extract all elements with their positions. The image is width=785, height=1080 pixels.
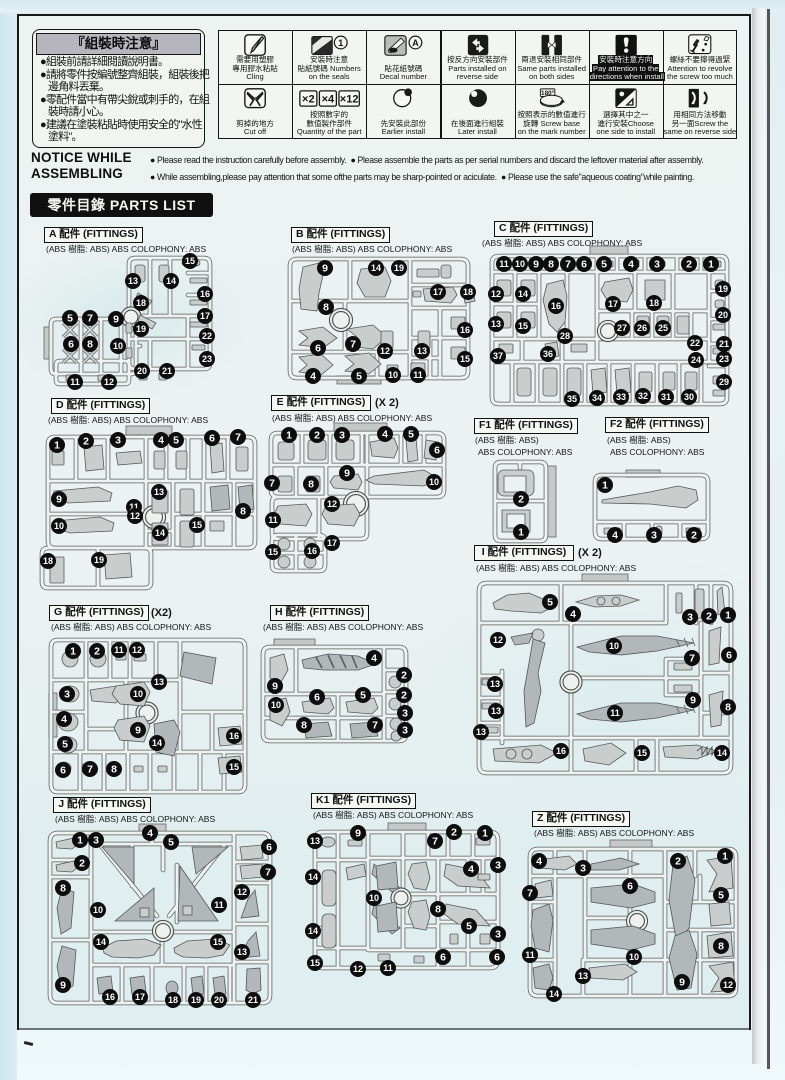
- svg-text:8: 8: [548, 258, 554, 270]
- svg-text:20: 20: [214, 995, 224, 1005]
- svg-text:3: 3: [64, 688, 70, 700]
- svg-text:12: 12: [353, 964, 363, 974]
- svg-text:3: 3: [402, 724, 408, 736]
- svg-text:3: 3: [495, 928, 501, 940]
- svg-text:10: 10: [609, 641, 619, 651]
- svg-text:15: 15: [192, 520, 202, 530]
- svg-text:8: 8: [725, 701, 731, 713]
- svg-text:15: 15: [213, 937, 223, 947]
- svg-text:10: 10: [93, 905, 103, 915]
- svg-text:13: 13: [310, 836, 320, 846]
- svg-text:×4: ×4: [321, 93, 334, 105]
- svg-text:12: 12: [380, 346, 390, 356]
- svg-text:13: 13: [154, 677, 164, 687]
- svg-text:17: 17: [327, 538, 337, 548]
- svg-text:5: 5: [67, 312, 73, 324]
- svg-text:17: 17: [433, 287, 443, 297]
- svg-text:33: 33: [616, 392, 626, 402]
- svg-text:16: 16: [105, 992, 115, 1002]
- svg-text:4: 4: [536, 855, 542, 867]
- svg-text:11: 11: [499, 259, 509, 269]
- svg-text:1: 1: [602, 479, 608, 491]
- svg-text:11: 11: [70, 377, 80, 387]
- svg-text:13: 13: [491, 706, 501, 716]
- svg-text:6: 6: [726, 649, 732, 661]
- svg-text:2: 2: [401, 689, 407, 701]
- svg-text:1: 1: [708, 258, 714, 270]
- svg-text:9: 9: [690, 694, 696, 706]
- svg-text:19: 19: [191, 995, 201, 1005]
- svg-text:2: 2: [675, 855, 681, 867]
- svg-text:5: 5: [718, 889, 724, 901]
- svg-text:16: 16: [229, 731, 239, 741]
- svg-text:22: 22: [690, 338, 700, 348]
- svg-text:9: 9: [355, 827, 361, 839]
- svg-text:5: 5: [547, 596, 553, 608]
- svg-text:15: 15: [518, 321, 528, 331]
- svg-text:7: 7: [265, 866, 271, 878]
- svg-text:21: 21: [719, 339, 729, 349]
- svg-text:3: 3: [495, 859, 501, 871]
- svg-text:13: 13: [128, 276, 138, 286]
- svg-text:10: 10: [429, 477, 439, 487]
- svg-text:3: 3: [654, 258, 660, 270]
- svg-text:26: 26: [637, 323, 647, 333]
- svg-text:36: 36: [543, 349, 553, 359]
- svg-text:6: 6: [315, 342, 321, 354]
- svg-text:2: 2: [79, 857, 85, 869]
- svg-text:×12: ×12: [339, 93, 358, 105]
- svg-text:7: 7: [350, 338, 356, 350]
- svg-text:1: 1: [54, 439, 60, 451]
- svg-text:25: 25: [658, 323, 668, 333]
- svg-text:1: 1: [77, 834, 83, 846]
- svg-text:4: 4: [468, 863, 474, 875]
- svg-text:4: 4: [628, 258, 634, 270]
- svg-text:9: 9: [533, 258, 539, 270]
- svg-text:37: 37: [493, 351, 503, 361]
- svg-text:14: 14: [518, 289, 528, 299]
- svg-text:12: 12: [491, 289, 501, 299]
- svg-text:1: 1: [286, 429, 292, 441]
- svg-text:13: 13: [490, 679, 500, 689]
- svg-text:6: 6: [314, 691, 320, 703]
- svg-text:3: 3: [115, 434, 121, 446]
- svg-text:4: 4: [382, 428, 388, 440]
- svg-text:3: 3: [687, 611, 693, 623]
- svg-text:12: 12: [130, 511, 140, 521]
- svg-text:4: 4: [147, 827, 153, 839]
- svg-text:17: 17: [200, 311, 210, 321]
- svg-text:2: 2: [94, 645, 100, 657]
- svg-text:13: 13: [417, 346, 427, 356]
- svg-text:1: 1: [482, 827, 488, 839]
- svg-text:19: 19: [94, 555, 104, 565]
- svg-text:7: 7: [527, 887, 533, 899]
- svg-text:20: 20: [137, 366, 147, 376]
- svg-text:6: 6: [434, 444, 440, 456]
- svg-text:9: 9: [56, 493, 62, 505]
- svg-text:30: 30: [684, 392, 694, 402]
- svg-text:6: 6: [68, 338, 74, 350]
- svg-text:2: 2: [706, 610, 712, 622]
- svg-text:5: 5: [173, 434, 179, 446]
- svg-text:12: 12: [327, 499, 337, 509]
- svg-text:6: 6: [494, 951, 500, 963]
- svg-text:8: 8: [111, 763, 117, 775]
- svg-text:5: 5: [356, 370, 362, 382]
- svg-text:11: 11: [610, 708, 620, 718]
- svg-text:31: 31: [661, 392, 671, 402]
- svg-text:1: 1: [722, 850, 728, 862]
- svg-text:12: 12: [723, 980, 733, 990]
- svg-text:14: 14: [717, 748, 727, 758]
- svg-text:4: 4: [612, 529, 618, 541]
- svg-text:13: 13: [578, 971, 588, 981]
- svg-text:11: 11: [525, 950, 535, 960]
- svg-text:8: 8: [87, 338, 93, 350]
- svg-text:15: 15: [185, 256, 195, 266]
- svg-text:7: 7: [689, 652, 695, 664]
- svg-text:21: 21: [248, 995, 258, 1005]
- svg-text:11: 11: [268, 515, 278, 525]
- svg-text:4: 4: [310, 370, 316, 382]
- svg-text:6: 6: [266, 841, 272, 853]
- svg-text:12: 12: [493, 635, 503, 645]
- svg-text:8: 8: [60, 882, 66, 894]
- svg-text:10: 10: [133, 689, 143, 699]
- svg-text:13: 13: [154, 487, 164, 497]
- svg-text:21: 21: [162, 366, 172, 376]
- svg-text:28: 28: [560, 331, 570, 341]
- svg-text:14: 14: [166, 276, 176, 286]
- svg-text:3: 3: [402, 707, 408, 719]
- svg-text:5: 5: [168, 836, 174, 848]
- svg-text:2: 2: [691, 529, 697, 541]
- svg-text:4: 4: [61, 713, 67, 725]
- svg-text:19: 19: [718, 284, 728, 294]
- svg-text:18: 18: [463, 287, 473, 297]
- svg-text:7: 7: [372, 719, 378, 731]
- svg-text:19: 19: [136, 324, 146, 334]
- svg-text:9: 9: [113, 313, 119, 325]
- svg-text:4: 4: [371, 652, 377, 664]
- svg-text:×2: ×2: [302, 93, 315, 105]
- svg-text:14: 14: [549, 989, 559, 999]
- svg-text:6: 6: [440, 951, 446, 963]
- svg-text:4: 4: [158, 434, 164, 446]
- svg-text:6: 6: [60, 764, 66, 776]
- svg-text:13: 13: [237, 947, 247, 957]
- svg-text:16: 16: [551, 301, 561, 311]
- svg-text:10: 10: [388, 370, 398, 380]
- svg-text:8: 8: [323, 301, 329, 313]
- svg-text:12: 12: [132, 645, 142, 655]
- svg-text:11: 11: [383, 963, 393, 973]
- svg-text:29: 29: [719, 377, 729, 387]
- svg-text:20: 20: [718, 310, 728, 320]
- svg-text:15: 15: [637, 748, 647, 758]
- svg-text:10: 10: [629, 952, 639, 962]
- svg-text:11: 11: [413, 370, 423, 380]
- svg-text:18: 18: [43, 556, 53, 566]
- svg-text:9: 9: [344, 467, 350, 479]
- svg-text:2: 2: [451, 826, 457, 838]
- svg-text:7: 7: [235, 431, 241, 443]
- svg-text:32: 32: [638, 391, 648, 401]
- svg-text:10: 10: [271, 700, 281, 710]
- svg-text:14: 14: [96, 937, 106, 947]
- svg-text:3: 3: [93, 834, 99, 846]
- svg-text:18: 18: [136, 298, 146, 308]
- svg-text:9: 9: [135, 724, 141, 736]
- svg-text:14: 14: [155, 528, 165, 538]
- svg-text:18: 18: [168, 995, 178, 1005]
- svg-text:15: 15: [268, 547, 278, 557]
- svg-text:5: 5: [408, 428, 414, 440]
- svg-text:34: 34: [592, 393, 602, 403]
- svg-text:19: 19: [394, 263, 404, 273]
- svg-text:12: 12: [104, 377, 114, 387]
- svg-text:15: 15: [310, 958, 320, 968]
- svg-text:8: 8: [308, 478, 314, 490]
- svg-text:1: 1: [70, 645, 76, 657]
- svg-text:3: 3: [339, 429, 345, 441]
- svg-text:A: A: [412, 37, 419, 47]
- svg-text:16: 16: [556, 746, 566, 756]
- svg-text:4: 4: [570, 608, 576, 620]
- svg-text:15: 15: [460, 354, 470, 364]
- svg-text:8: 8: [435, 903, 441, 915]
- svg-text:1: 1: [338, 37, 343, 47]
- svg-text:7: 7: [432, 835, 438, 847]
- svg-text:18: 18: [649, 298, 659, 308]
- svg-text:2: 2: [686, 258, 692, 270]
- svg-text:8: 8: [240, 505, 246, 517]
- svg-text:2: 2: [401, 669, 407, 681]
- svg-text:10: 10: [113, 341, 123, 351]
- svg-text:17: 17: [135, 992, 145, 1002]
- svg-text:9: 9: [272, 680, 278, 692]
- svg-text:14: 14: [308, 926, 318, 936]
- svg-text:5: 5: [466, 920, 472, 932]
- svg-text:13: 13: [491, 319, 501, 329]
- svg-text:6: 6: [209, 432, 215, 444]
- svg-text:7: 7: [565, 258, 571, 270]
- svg-text:2: 2: [83, 435, 89, 447]
- svg-text:3: 3: [580, 862, 586, 874]
- svg-text:5: 5: [62, 738, 68, 750]
- svg-text:23: 23: [719, 354, 729, 364]
- svg-text:5: 5: [601, 258, 607, 270]
- svg-text:1: 1: [518, 526, 524, 538]
- svg-text:35: 35: [567, 394, 577, 404]
- svg-text:10: 10: [369, 893, 379, 903]
- svg-text:16: 16: [460, 325, 470, 335]
- svg-text:10: 10: [54, 521, 64, 531]
- svg-text:14: 14: [371, 263, 381, 273]
- svg-text:2: 2: [314, 429, 320, 441]
- svg-text:24: 24: [691, 355, 701, 365]
- svg-text:11: 11: [214, 900, 224, 910]
- svg-text:23: 23: [202, 354, 212, 364]
- svg-text:10: 10: [515, 259, 525, 269]
- svg-text:3: 3: [651, 529, 657, 541]
- svg-text:7: 7: [87, 312, 93, 324]
- svg-text:5: 5: [360, 689, 366, 701]
- svg-text:27: 27: [617, 323, 627, 333]
- svg-text:22: 22: [202, 331, 212, 341]
- svg-text:14: 14: [308, 872, 318, 882]
- svg-text:13: 13: [476, 727, 486, 737]
- svg-text:16: 16: [307, 546, 317, 556]
- svg-text:9: 9: [679, 976, 685, 988]
- svg-text:6: 6: [627, 880, 633, 892]
- svg-text:1: 1: [725, 609, 731, 621]
- svg-text:12: 12: [237, 887, 247, 897]
- svg-text:9: 9: [322, 262, 328, 274]
- svg-text:14: 14: [152, 738, 162, 748]
- svg-text:11: 11: [114, 645, 124, 655]
- svg-text:16: 16: [200, 289, 210, 299]
- svg-text:15: 15: [229, 762, 239, 772]
- svg-text:8: 8: [301, 719, 307, 731]
- svg-text:6: 6: [581, 258, 587, 270]
- svg-text:2: 2: [518, 493, 524, 505]
- svg-text:17: 17: [608, 299, 618, 309]
- svg-text:7: 7: [87, 763, 93, 775]
- svg-text:8: 8: [718, 940, 724, 952]
- svg-text:9: 9: [60, 979, 66, 991]
- svg-text:7: 7: [269, 477, 275, 489]
